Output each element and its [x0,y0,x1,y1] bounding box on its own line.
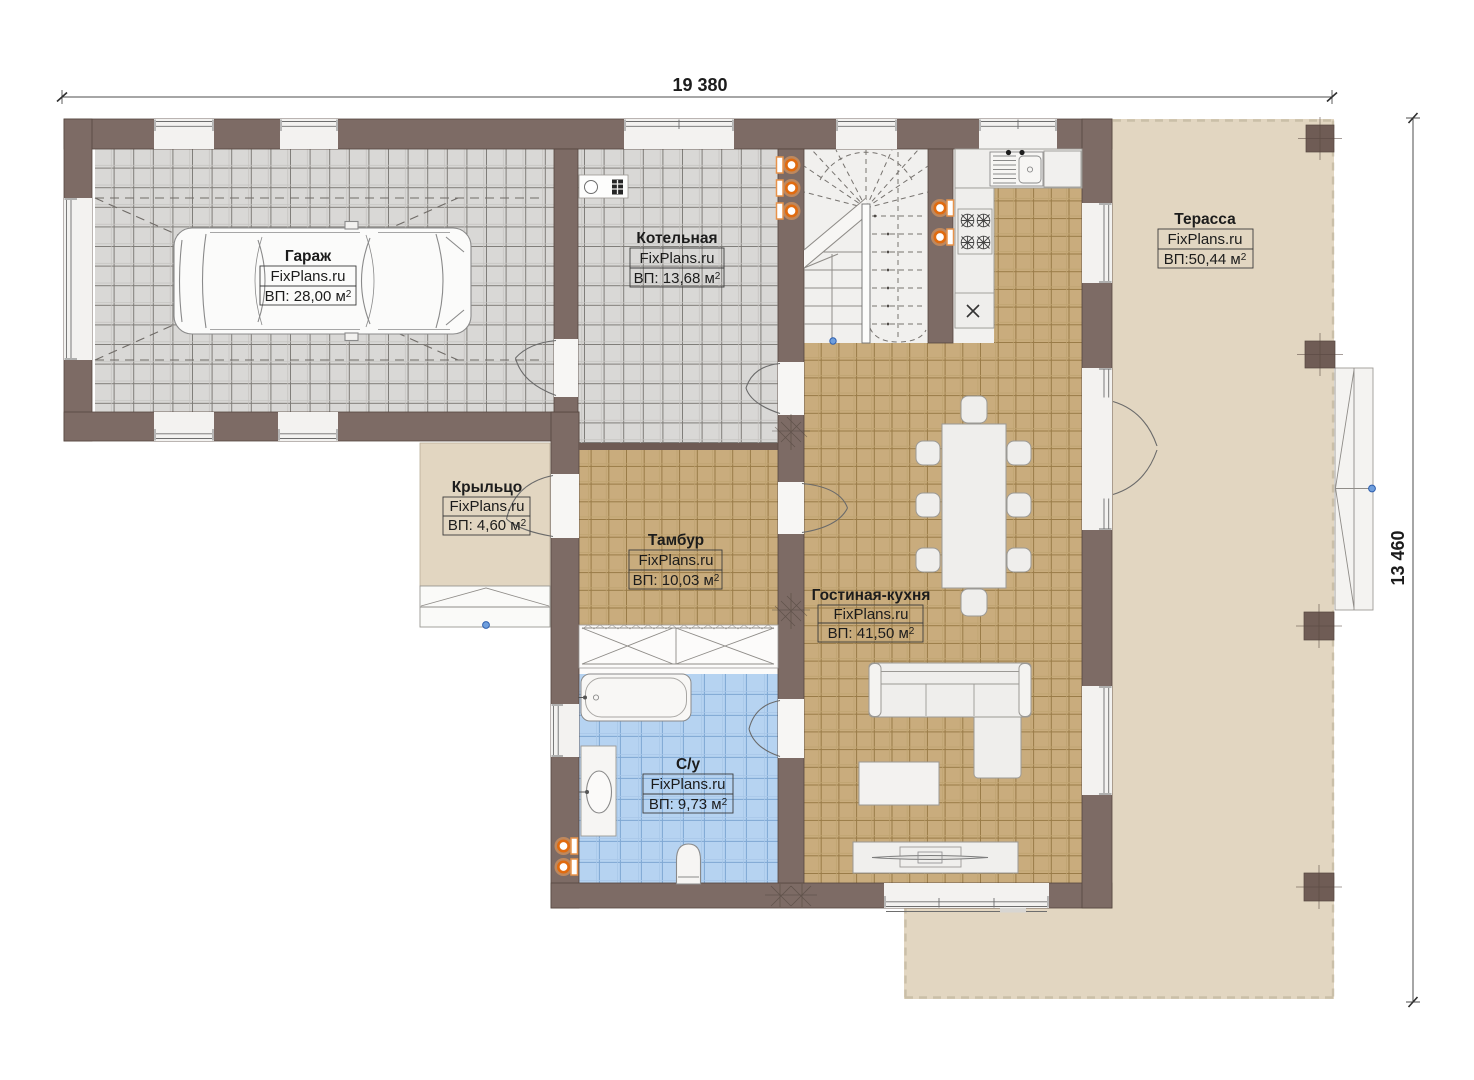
svg-text:Гараж: Гараж [285,248,332,265]
svg-text:Тамбур: Тамбур [648,532,704,549]
svg-text:13 460: 13 460 [1388,530,1408,585]
svg-text:ВП: 10,03 м2: ВП: 10,03 м2 [633,572,720,589]
svg-text:ВП: 41,50 м2: ВП: 41,50 м2 [828,625,915,642]
svg-text:ВП: 9,73 м2: ВП: 9,73 м2 [649,796,728,813]
svg-text:ВП: 28,00 м2: ВП: 28,00 м2 [265,288,352,305]
svg-text:FixPlans.ru: FixPlans.ru [638,552,713,569]
svg-text:FixPlans.ru: FixPlans.ru [650,776,725,793]
svg-text:FixPlans.ru: FixPlans.ru [1167,231,1242,248]
svg-text:С/у: С/у [676,756,701,773]
svg-text:ВП: 13,68 м2: ВП: 13,68 м2 [634,270,721,287]
svg-text:FixPlans.ru: FixPlans.ru [270,268,345,285]
svg-text:Крыльцо: Крыльцо [452,479,523,496]
svg-text:ВП:50,44 м2: ВП:50,44 м2 [1164,251,1247,268]
svg-text:FixPlans.ru: FixPlans.ru [449,498,524,515]
svg-text:ВП: 4,60 м2: ВП: 4,60 м2 [448,517,527,534]
svg-text:FixPlans.ru: FixPlans.ru [833,606,908,623]
svg-text:Котельная: Котельная [636,230,717,247]
svg-text:FixPlans.ru: FixPlans.ru [639,250,714,267]
svg-text:Гостиная-кухня: Гостиная-кухня [812,587,931,604]
svg-text:19 380: 19 380 [672,75,727,95]
svg-text:Терасса: Терасса [1174,211,1236,228]
